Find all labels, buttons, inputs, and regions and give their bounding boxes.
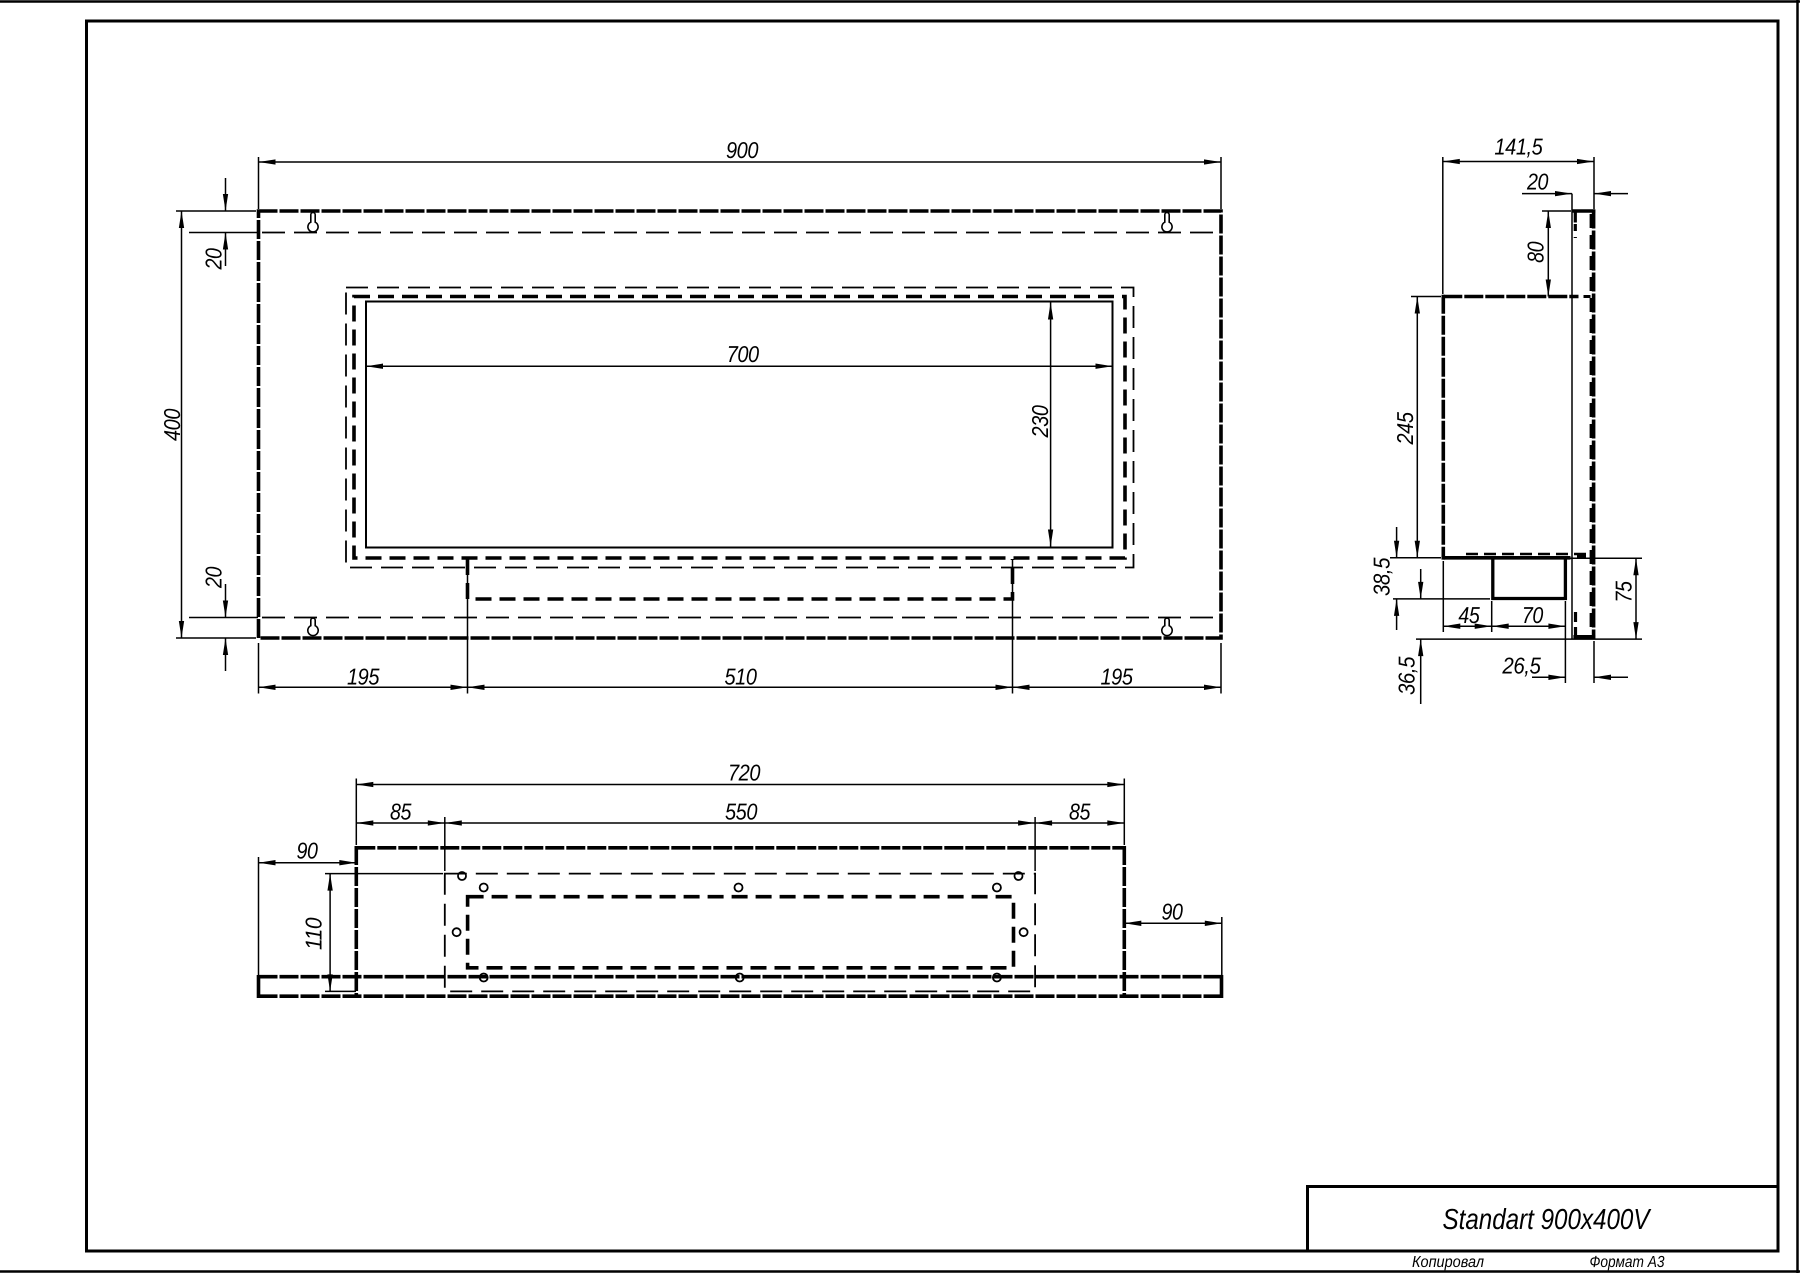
svg-text:110: 110	[301, 917, 327, 950]
svg-text:550: 550	[725, 799, 758, 825]
svg-text:26,5: 26,5	[1502, 652, 1542, 678]
svg-text:85: 85	[390, 799, 412, 825]
svg-text:141,5: 141,5	[1494, 134, 1543, 160]
svg-text:245: 245	[1392, 412, 1418, 445]
svg-text:20: 20	[201, 248, 227, 270]
svg-text:400: 400	[159, 408, 185, 441]
svg-text:70: 70	[1522, 602, 1544, 628]
svg-text:20: 20	[1526, 169, 1548, 195]
svg-text:230: 230	[1027, 405, 1053, 438]
svg-text:Формат А3: Формат А3	[1590, 1254, 1665, 1271]
svg-text:45: 45	[1458, 602, 1480, 628]
svg-text:75: 75	[1611, 581, 1637, 603]
svg-text:90: 90	[1162, 898, 1184, 924]
svg-text:700: 700	[727, 341, 760, 367]
svg-text:195: 195	[347, 664, 380, 690]
svg-text:Standart 900x400V: Standart 900x400V	[1443, 1204, 1652, 1236]
svg-text:900: 900	[726, 137, 759, 163]
svg-text:36,5: 36,5	[1394, 656, 1420, 695]
svg-text:90: 90	[297, 838, 319, 864]
svg-text:20: 20	[201, 566, 227, 588]
svg-text:85: 85	[1069, 799, 1091, 825]
svg-text:Копировал: Копировал	[1412, 1254, 1484, 1271]
svg-text:195: 195	[1101, 664, 1134, 690]
svg-text:510: 510	[725, 664, 758, 690]
svg-text:80: 80	[1523, 241, 1549, 263]
svg-text:720: 720	[728, 760, 761, 786]
svg-text:38,5: 38,5	[1369, 557, 1395, 596]
